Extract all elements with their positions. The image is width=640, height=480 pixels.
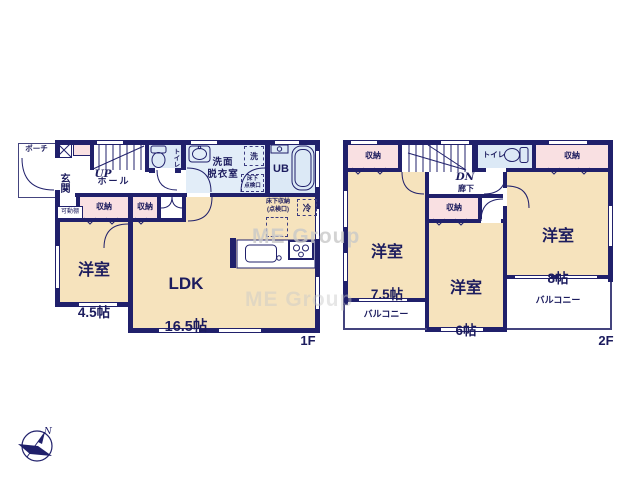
room-name: LDK (148, 273, 224, 295)
washroom-label: 洗面 脱衣室 (196, 157, 250, 182)
room-size: 6帖 (432, 322, 500, 340)
toilet-label-2f: トイレ (481, 150, 507, 160)
window (608, 205, 613, 247)
room-name: 洋室 (352, 243, 422, 264)
window (548, 140, 588, 145)
room-size: 4.5帖 (60, 304, 128, 322)
closet-b-label: 収納 (133, 202, 157, 212)
door-gap (187, 193, 210, 197)
balcony-railing (507, 328, 612, 330)
door-arc (157, 170, 177, 190)
closet-topleft-label: 収納 (356, 151, 390, 161)
wall (161, 218, 186, 222)
room-size: 8帖 (524, 270, 592, 288)
room-name: 洋室 (524, 227, 592, 248)
stairs-icon-2f (408, 145, 466, 172)
balcony-railing (343, 328, 427, 330)
window (440, 140, 470, 145)
closet-mid-label: 収納 (436, 203, 472, 213)
floor-label-2f: 2F (592, 333, 620, 350)
underfloor-storage-label: 床下収納 (点検口) (258, 199, 298, 215)
closet-topright-label: 収納 (554, 151, 590, 161)
watermark: ME Group (245, 288, 353, 312)
wall (182, 197, 186, 218)
kitchen-wall-stub (230, 238, 236, 268)
wall (157, 193, 161, 222)
western8-label: 洋室 8帖 (524, 206, 592, 309)
hall-label: ホール (94, 176, 134, 188)
window (218, 328, 262, 333)
window (190, 140, 218, 145)
room-name: 洋室 (432, 279, 500, 300)
bath-label: UB (269, 162, 293, 176)
porch-label: ポーチ (18, 144, 55, 154)
ldk-label: LDK 16.5帖 (148, 252, 224, 357)
door-gap (486, 168, 506, 172)
closet-a-label: 収納 (88, 202, 120, 212)
fridge-space: 冷 (297, 199, 317, 216)
window (274, 140, 300, 145)
door-gap (181, 170, 186, 193)
movable-shelf-label: 可動棚 (57, 209, 83, 217)
wall (128, 218, 133, 333)
wall (90, 140, 94, 170)
wall (343, 168, 402, 172)
watermark: ME Group (252, 225, 360, 249)
window (315, 150, 320, 188)
wall (478, 194, 482, 219)
balcony-railing (610, 282, 612, 330)
balcony-left-label: バルコニー (358, 309, 414, 321)
stairs-down-label: DN (452, 171, 478, 185)
window (350, 140, 378, 145)
balcony-right-label: バルコニー (530, 295, 586, 307)
room-size: 7.5帖 (352, 286, 422, 304)
corridor-label: 廊下 (454, 184, 478, 194)
stairs-icon-1f (93, 145, 144, 170)
room-size: 16.5帖 (148, 318, 224, 337)
compass-icon: N (18, 427, 53, 461)
window (343, 190, 348, 228)
room-name: 洋室 (60, 261, 128, 282)
western-room-label-1f: 洋室 4.5帖 (60, 240, 128, 343)
entrance-label: 玄関 (56, 165, 70, 201)
door-arc (481, 199, 503, 221)
wall (536, 168, 608, 172)
wall (429, 194, 503, 198)
compass-north-label: N (43, 427, 53, 437)
door-arc (161, 197, 172, 208)
toilet-label-1f: トイレ (169, 145, 179, 171)
window (96, 140, 124, 145)
window (343, 252, 348, 282)
western6-label: 洋室 6帖 (432, 258, 500, 361)
floorplan-canvas: 洗 床下 点検口 冷 床下収納 (点検口) (0, 0, 640, 480)
door-gap (503, 188, 507, 206)
door-gap (481, 219, 501, 223)
floor-label-1f: 1F (294, 333, 322, 350)
